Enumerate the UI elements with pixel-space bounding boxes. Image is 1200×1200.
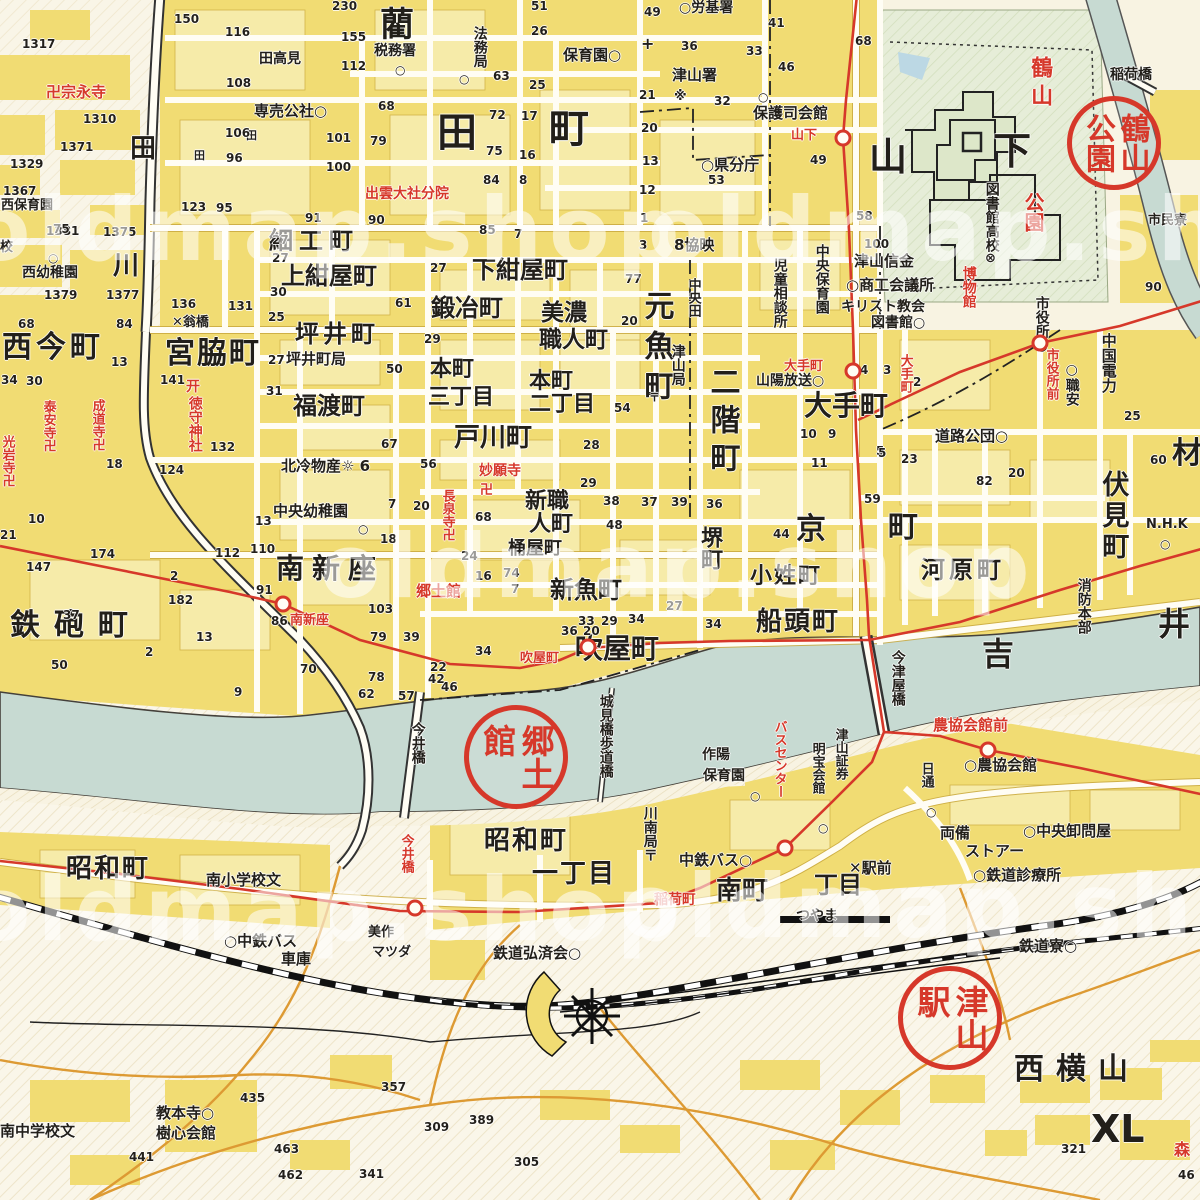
tsuyama-station-stamp: 津山 駅 [898, 966, 1002, 1070]
bus-stop-marker [1032, 335, 1049, 352]
bus-stop-marker [845, 363, 862, 380]
bus-stop-marker [275, 596, 292, 613]
bus-stop-marker [777, 840, 794, 857]
bus-stop-marker [580, 639, 597, 656]
kyodokan-stamp: 郷土 館 [464, 705, 568, 809]
bus-stop-marker [407, 900, 424, 917]
map-root: 田町山下藺川田西今町宮脇町細工町上紺屋町坪井町下紺屋町鍛冶町美濃職人町本町三丁目… [0, 0, 1200, 1200]
map-base-art [0, 0, 1200, 1200]
tsuruyama-park-stamp: 鶴山 公園 [1067, 96, 1161, 190]
bus-stop-marker [980, 742, 997, 759]
bus-stop-marker [835, 130, 852, 147]
